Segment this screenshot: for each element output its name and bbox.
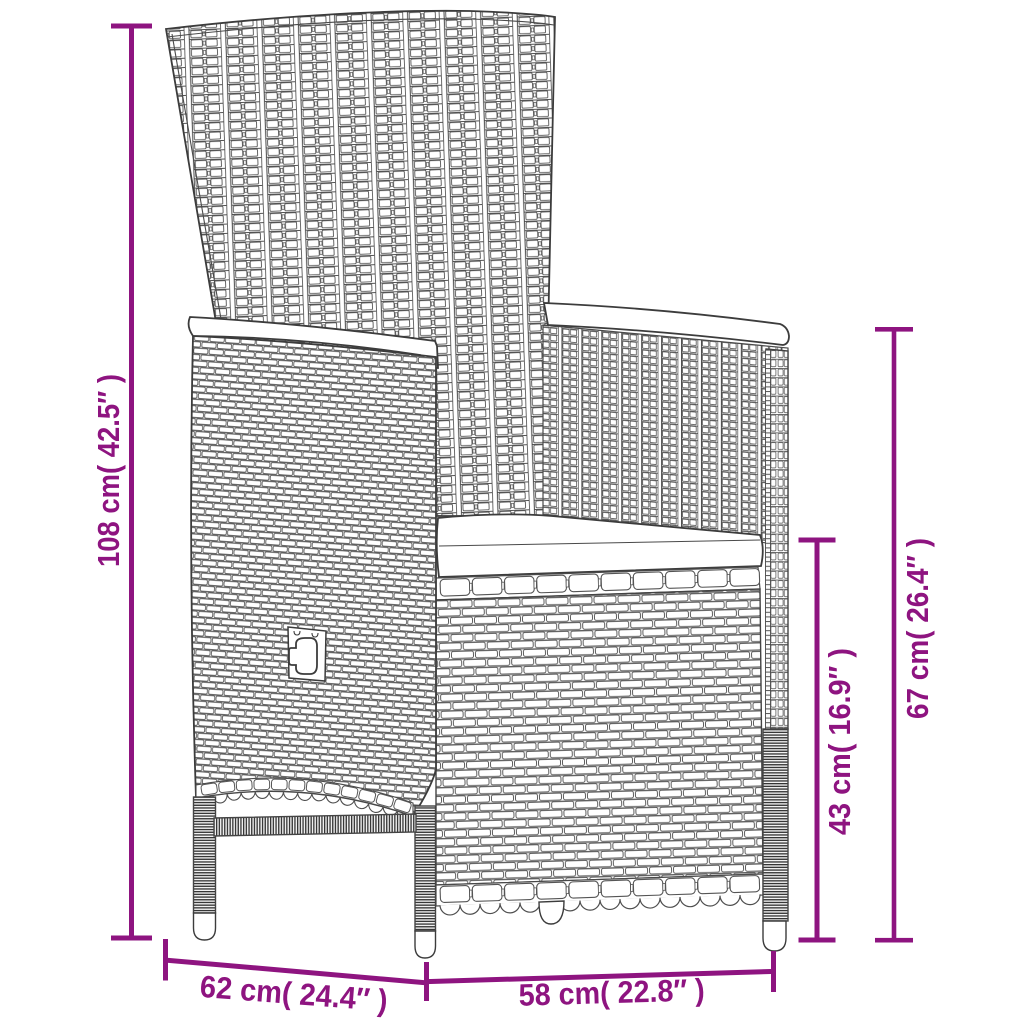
svg-text:58 cm( 22.8″ ): 58 cm( 22.8″ ): [518, 972, 705, 1013]
svg-text:67 cm( 26.4″ ): 67 cm( 26.4″ ): [900, 538, 935, 719]
svg-text:43 cm( 16.9″ ): 43 cm( 16.9″ ): [822, 648, 857, 835]
svg-text:108 cm( 42.5″ ): 108 cm( 42.5″ ): [91, 374, 126, 567]
